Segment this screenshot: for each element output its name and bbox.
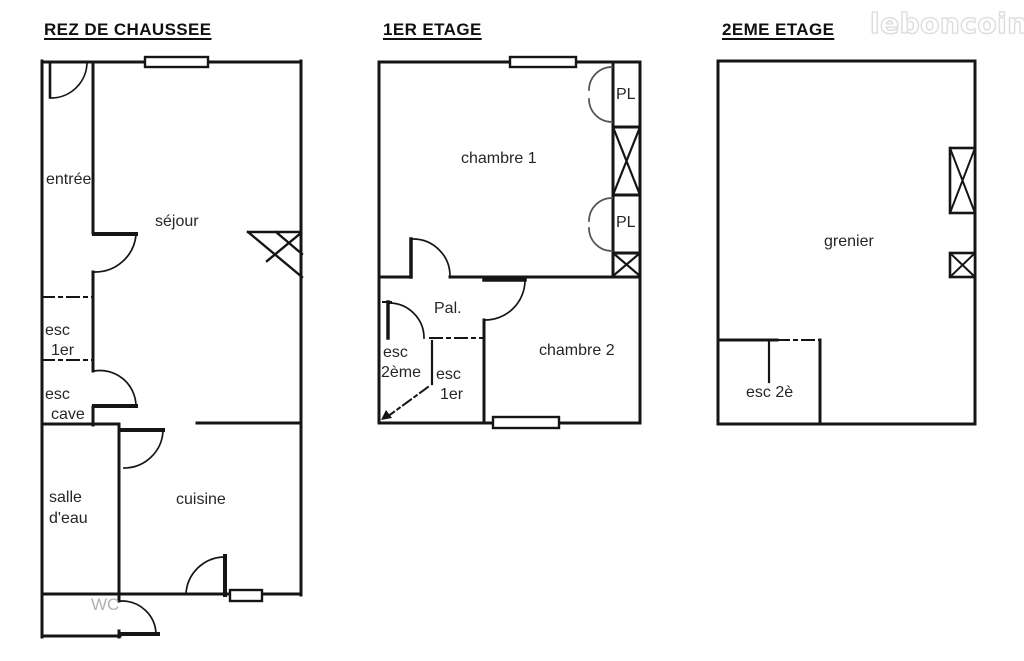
room-label-sejour: séjour: [155, 213, 199, 231]
e1-window-top: [510, 57, 576, 67]
leboncoin-watermark: leboncoin: [870, 10, 1024, 38]
rdc-inner-walls: [42, 423, 301, 637]
e1-palier-door-arc: [389, 303, 424, 338]
floorplan-image: REZ DE CHAUSSEE 1ER ETAGE 2EME ETAGE leb…: [0, 0, 1024, 661]
label-placard-bas: PL: [616, 214, 636, 232]
label-esc-2eme-line2: 2ème: [381, 364, 421, 382]
floor-title-rez-de-chaussee: REZ DE CHAUSSEE: [44, 20, 212, 40]
label-esc-1er-e1-line2: 1er: [440, 386, 463, 404]
label-esc-1er-e1-line1: esc: [436, 366, 461, 384]
floor-title-2eme-etage: 2EME ETAGE: [722, 20, 834, 40]
label-esc-1er-line2: 1er: [51, 342, 74, 360]
e1-closet-doors-top: [589, 67, 612, 122]
rdc-cuisine-back-door-arc: [186, 557, 224, 594]
rdc-sejour-door-arc: [94, 235, 136, 272]
rdc-outer-walls: [42, 61, 301, 637]
label-esc-2eme-line1: esc: [383, 344, 408, 362]
e1-chambre1-door-arc: [413, 239, 450, 276]
room-label-entree: entrée: [46, 171, 91, 189]
room-label-palier: Pal.: [434, 300, 462, 318]
rdc-window-top: [145, 57, 208, 67]
rdc-wc-door-arc: [121, 601, 156, 634]
rdc-cuisine-passage-door-arc: [124, 431, 163, 468]
room-label-salle-deau-line1: salle: [49, 489, 82, 507]
rdc-window-bottom: [230, 590, 262, 601]
label-esc-1er-line1: esc: [45, 322, 70, 340]
rdc-cave-door-arc: [94, 370, 136, 406]
e1-closet-doors-bottom: [589, 198, 612, 251]
label-esc-2e: esc 2è: [746, 384, 793, 402]
label-placard-haut: PL: [616, 86, 636, 104]
label-esc-cave-line1: esc: [45, 386, 70, 404]
label-esc-cave-line2: cave: [51, 406, 85, 424]
rdc-corner-fireplace: [248, 232, 302, 277]
room-label-wc: WC: [91, 596, 119, 615]
rdc-entry-door-arc: [50, 62, 87, 98]
floorplan-linework: [0, 0, 1024, 661]
room-label-grenier: grenier: [824, 233, 874, 251]
plan-rez-de-chaussee: [42, 57, 302, 637]
room-label-cuisine: cuisine: [176, 491, 226, 509]
room-label-salle-deau-line2: d'eau: [49, 510, 88, 528]
room-label-chambre1: chambre 1: [461, 150, 537, 168]
room-label-chambre2: chambre 2: [539, 342, 615, 360]
floor-title-1er-etage: 1ER ETAGE: [383, 20, 482, 40]
e1-chambre2-door-arc: [484, 281, 525, 320]
e1-stair-direction-line: [387, 387, 428, 417]
e1-window-bottom: [493, 417, 559, 428]
